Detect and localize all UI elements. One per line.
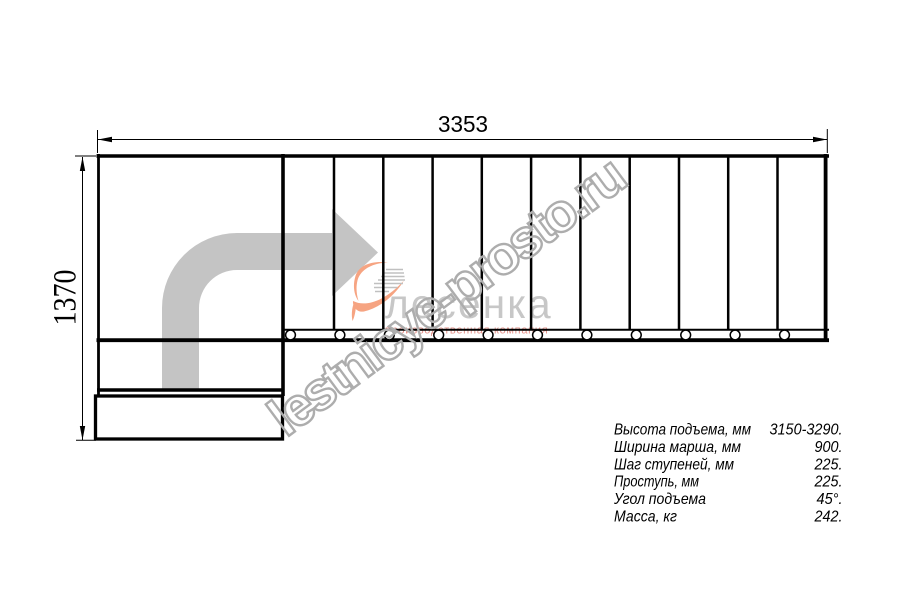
svg-text:Высота подъема, мм: Высота подъема, мм <box>614 422 751 439</box>
svg-text:Масса, кг: Масса, кг <box>614 509 677 526</box>
svg-text:Проступь, мм: Проступь, мм <box>614 474 699 491</box>
svg-text:3353: 3353 <box>438 111 488 137</box>
svg-text:225.: 225. <box>814 456 843 473</box>
svg-text:225.: 225. <box>814 474 843 491</box>
svg-text:Шаг ступеней, мм: Шаг ступеней, мм <box>614 456 734 473</box>
svg-text:Угол подъема: Угол подъема <box>613 491 706 508</box>
svg-text:Ширина марша, мм: Ширина марша, мм <box>614 439 741 456</box>
svg-text:900.: 900. <box>815 439 843 456</box>
svg-text:45°.: 45°. <box>817 491 843 508</box>
svg-text:lestnicye-prosto.ru: lestnicye-prosto.ru <box>257 146 635 447</box>
svg-text:1370: 1370 <box>48 270 84 326</box>
svg-text:242.: 242. <box>814 509 843 526</box>
svg-text:3150-3290.: 3150-3290. <box>770 422 843 439</box>
